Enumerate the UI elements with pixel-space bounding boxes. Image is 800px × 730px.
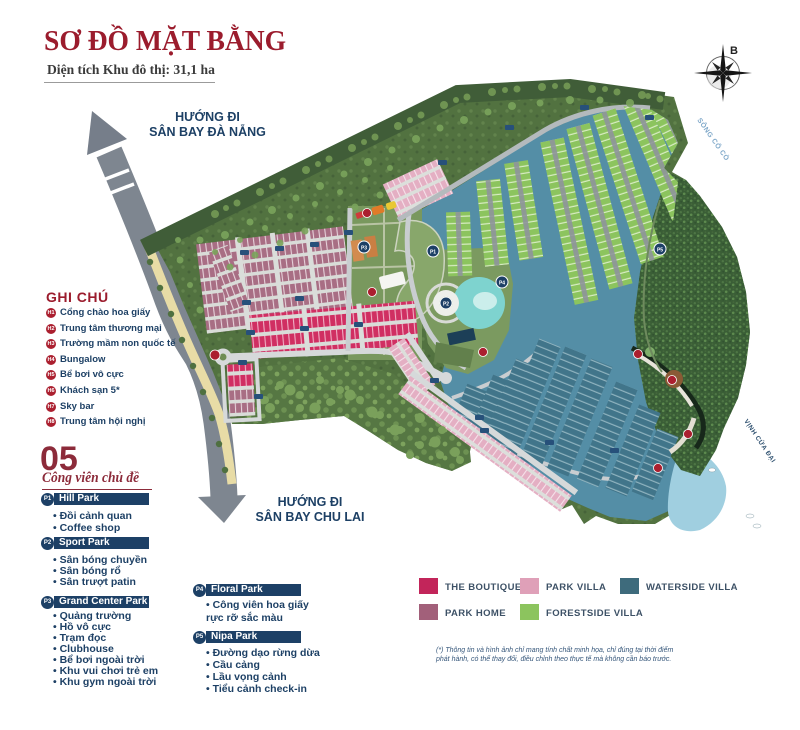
svg-text:B: B — [730, 45, 738, 57]
svg-text:P5: P5 — [657, 248, 663, 254]
svg-text:P2: P2 — [443, 302, 449, 308]
svg-text:SÔNG CỔ CÒ: SÔNG CỔ CÒ — [695, 116, 731, 163]
svg-text:P1: P1 — [430, 250, 436, 256]
svg-text:VỊNH CỬA ĐẠI: VỊNH CỬA ĐẠI — [742, 417, 778, 464]
svg-text:P4: P4 — [499, 281, 505, 287]
svg-text:P3: P3 — [361, 246, 367, 252]
